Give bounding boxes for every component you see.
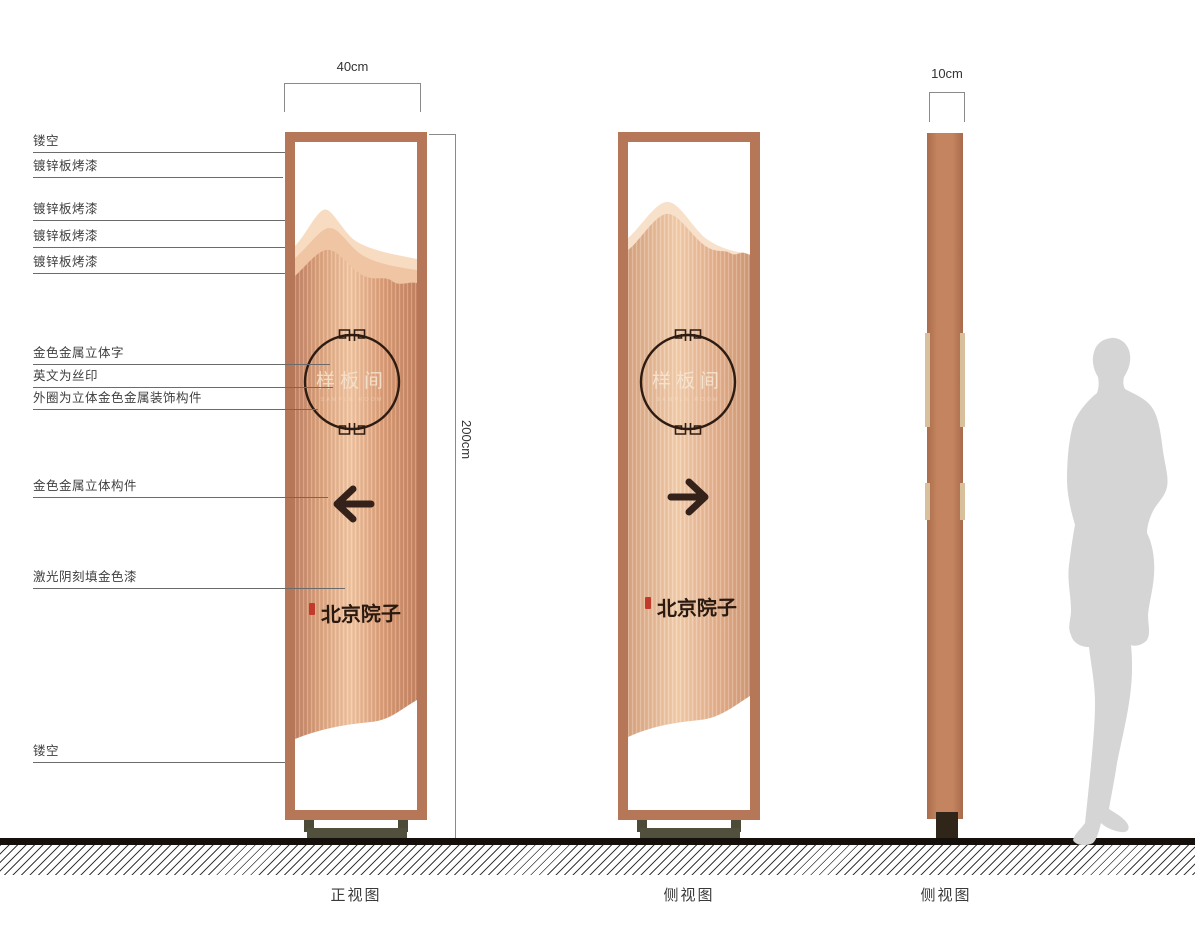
panel-back-art: 样板间 SAMPLE ROOM 北京院子: [628, 142, 750, 810]
dimension-width-tick-right: [420, 83, 421, 112]
seal-icon: [645, 597, 651, 609]
callout-label: 镀锌板烤漆: [33, 229, 293, 244]
callout-galvanized-2: 镀锌板烤漆: [33, 202, 291, 221]
ground-line: [0, 838, 1195, 845]
view-label-side-1: 侧视图: [618, 884, 760, 905]
callout-galvanized-3: 镀锌板烤漆: [33, 229, 293, 248]
view-label-side-2: 侧视图: [875, 884, 1017, 905]
panel-back-view: 样板间 SAMPLE ROOM 北京院子: [618, 132, 760, 820]
room-name-en-text: SAMPLE ROOM: [657, 397, 720, 403]
brand-name-text: 北京院子: [657, 595, 737, 620]
leader-line: [33, 247, 293, 248]
view-label-front: 正视图: [285, 884, 427, 905]
panel-front-view: 样板间 SAMPLE ROOM 北京院子: [285, 132, 427, 820]
callout-label: 激光阴刻填金色漆: [33, 570, 345, 585]
dimension-width-line: [284, 83, 421, 84]
leader-line: [33, 220, 291, 221]
callout-laser-engraving: 激光阴刻填金色漆: [33, 570, 345, 589]
callout-hollow-bottom: 镂空: [33, 744, 302, 763]
panel-front-art: 样板间 SAMPLE ROOM 北京院子: [295, 142, 417, 810]
dimension-depth-label: 10cm: [912, 66, 982, 81]
callout-label: 镀锌板烤漆: [33, 159, 283, 174]
ground-hatch: [0, 845, 1195, 875]
side-protrusion-arrow-right: [960, 483, 965, 520]
callout-gold-component: 金色金属立体构件: [33, 479, 328, 498]
callout-label: 镂空: [33, 744, 302, 759]
callout-galvanized-4: 镀锌板烤漆: [33, 255, 292, 274]
brand-name-text: 北京院子: [321, 601, 401, 626]
dimension-height-line: [455, 134, 456, 838]
dimension-depth-line: [929, 92, 965, 93]
callout-galvanized-1: 镀锌板烤漆: [33, 159, 283, 178]
leader-line: [33, 387, 333, 388]
callout-hollow-top: 镂空: [33, 134, 307, 153]
callout-outer-ring: 外圈为立体金色金属装饰构件: [33, 391, 318, 410]
leader-line: [33, 762, 302, 763]
brand-calligraphy: 北京院子: [309, 601, 401, 626]
callout-english-silkscreen: 英文为丝印: [33, 369, 333, 388]
dimension-depth-tick-left: [929, 92, 930, 122]
dimension-height-tick-top: [429, 134, 456, 135]
leader-line: [33, 177, 283, 178]
callout-label: 外圈为立体金色金属装饰构件: [33, 391, 318, 406]
dimension-width-label: 40cm: [284, 59, 421, 74]
callout-gold-letters: 金色金属立体字: [33, 346, 330, 365]
callout-label: 镀锌板烤漆: [33, 255, 292, 270]
callout-label: 镂空: [33, 134, 307, 149]
dimension-width-tick-left: [284, 83, 285, 112]
side-protrusion-ring-right: [960, 333, 965, 427]
callout-label: 金色金属立体字: [33, 346, 330, 361]
side-protrusion-arrow-left: [925, 483, 930, 520]
leader-line: [33, 152, 307, 153]
leader-line: [33, 364, 330, 365]
leader-line: [33, 273, 292, 274]
dimension-depth-tick-right: [964, 92, 965, 122]
room-name-en-text: SAMPLE ROOM: [321, 397, 384, 403]
callout-label: 英文为丝印: [33, 369, 333, 384]
dimension-height-label: 200cm: [459, 420, 474, 459]
leader-line: [33, 588, 345, 589]
base-bar: [307, 828, 407, 838]
side-protrusion-ring-left: [925, 333, 930, 427]
callout-label: 金色金属立体构件: [33, 479, 328, 494]
human-silhouette: [1035, 335, 1175, 850]
brushed-texture: [628, 214, 750, 737]
seal-icon: [309, 603, 315, 615]
signage-design-sheet: 镂空 镀锌板烤漆 镀锌板烤漆 镀锌板烤漆 镀锌板烤漆 金色金属立体字 英文为丝印…: [0, 0, 1195, 927]
callout-label: 镀锌板烤漆: [33, 202, 291, 217]
leader-line: [33, 409, 318, 410]
base-bar: [640, 828, 740, 838]
room-name-text: 样板间: [652, 370, 724, 392]
brand-calligraphy: 北京院子: [645, 595, 737, 620]
panel-side-profile: [927, 133, 963, 819]
leader-line: [33, 497, 328, 498]
side-base-block: [936, 812, 958, 840]
